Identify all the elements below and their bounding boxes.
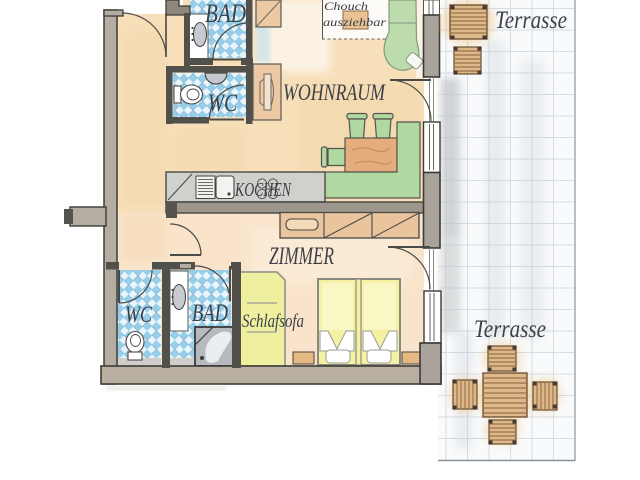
svg-text:Terrasse: Terrasse — [474, 316, 546, 343]
svg-text:Chouch: Chouch — [324, 0, 368, 13]
svg-text:Schlafsofa: Schlafsofa — [242, 311, 304, 332]
svg-text:ZIMMER: ZIMMER — [269, 243, 334, 270]
svg-text:BAD: BAD — [205, 0, 246, 28]
svg-text:Terrasse: Terrasse — [495, 7, 567, 34]
svg-text:WC: WC — [208, 90, 237, 117]
svg-text:BAD: BAD — [192, 300, 228, 327]
svg-text:ausziehbar: ausziehbar — [323, 15, 386, 29]
svg-text:KOCHEN: KOCHEN — [234, 179, 292, 201]
svg-text:WOHNRAUM: WOHNRAUM — [283, 80, 386, 105]
svg-text:WC: WC — [125, 302, 153, 327]
